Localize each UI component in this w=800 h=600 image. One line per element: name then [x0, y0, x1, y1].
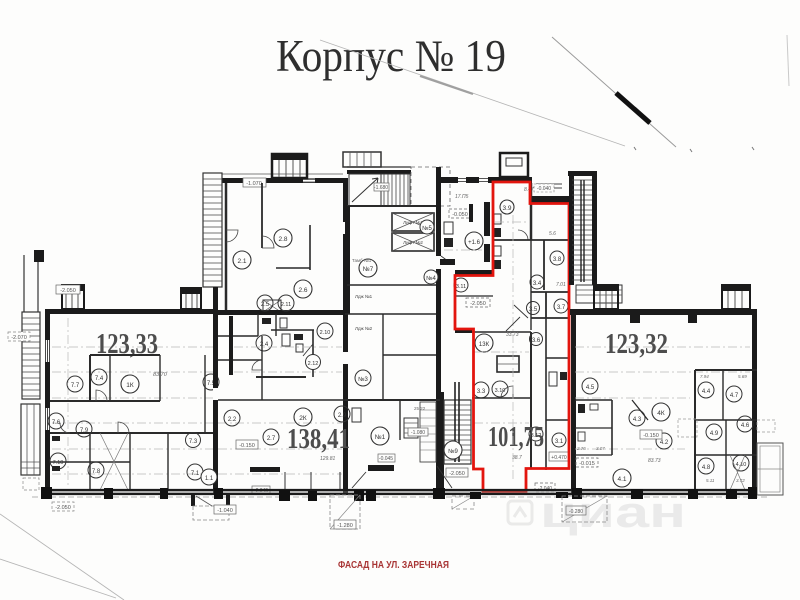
svg-text:3.3: 3.3 — [477, 389, 486, 395]
svg-text:4.9: 4.9 — [710, 431, 719, 437]
svg-text:4.5: 4.5 — [586, 385, 595, 391]
svg-text:101,75: 101,75 — [488, 422, 544, 453]
svg-text:2.9: 2.9 — [338, 413, 347, 419]
svg-text:-2.050: -2.050 — [470, 301, 486, 307]
svg-text:Лдж №2: Лдж №2 — [355, 326, 373, 331]
svg-text:13К: 13К — [479, 342, 490, 348]
svg-text:+1.6: +1.6 — [468, 240, 481, 246]
svg-text:4.3: 4.3 — [633, 417, 642, 423]
svg-text:33.73: 33.73 — [506, 332, 519, 338]
svg-text:7.6: 7.6 — [52, 420, 61, 426]
svg-text:7.94: 7.94 — [700, 374, 709, 379]
svg-text:-0.015: -0.015 — [579, 461, 595, 467]
svg-text:3.1: 3.1 — [555, 439, 564, 445]
svg-text:7.1: 7.1 — [191, 471, 200, 477]
svg-text:2.7: 2.7 — [267, 436, 276, 442]
svg-text:4К: 4К — [657, 410, 665, 417]
svg-text:Корпус № 19: Корпус № 19 — [276, 31, 506, 81]
svg-text:5.6: 5.6 — [549, 231, 556, 237]
svg-text:циан: циан — [540, 488, 686, 537]
svg-text:Тамб №1: Тамб №1 — [352, 258, 372, 263]
svg-text:2.10: 2.10 — [320, 330, 331, 336]
svg-text:3.5: 3.5 — [529, 307, 538, 313]
svg-text:+0.470: +0.470 — [551, 455, 567, 461]
svg-text:-2.050: -2.050 — [449, 471, 465, 477]
svg-text:1К: 1К — [126, 382, 134, 389]
svg-text:ФАСАД НА УЛ. ЗАРЕЧНАЯ: ФАСАД НА УЛ. ЗАРЕЧНАЯ — [338, 559, 449, 571]
svg-text:2.12: 2.12 — [308, 361, 319, 367]
svg-text:7.9: 7.9 — [80, 428, 89, 434]
svg-text:2.11: 2.11 — [281, 302, 291, 308]
svg-text:4.1: 4.1 — [617, 476, 626, 483]
svg-text:3.9: 3.9 — [502, 205, 511, 212]
svg-text:3.72: 3.72 — [736, 478, 745, 483]
svg-text:1.1: 1.1 — [205, 476, 214, 482]
svg-text:138,41: 138,41 — [287, 423, 350, 455]
svg-text:7.7: 7.7 — [71, 383, 80, 389]
svg-text:7.3: 7.3 — [189, 439, 198, 445]
svg-text:4.7: 4.7 — [730, 393, 739, 399]
svg-text:-2.050: -2.050 — [55, 505, 71, 511]
svg-text:83.73: 83.73 — [648, 458, 661, 464]
svg-text:2.8: 2.8 — [278, 236, 287, 243]
svg-text:7.01: 7.01 — [556, 282, 566, 288]
svg-text:3.6: 3.6 — [532, 338, 541, 344]
svg-text:-0.045: -0.045 — [379, 456, 393, 462]
svg-text:Лифт №2: Лифт №2 — [403, 240, 423, 245]
svg-text:25.22: 25.22 — [414, 406, 426, 411]
svg-text:-2.050: -2.050 — [60, 288, 76, 294]
svg-text:7.8: 7.8 — [92, 469, 101, 475]
svg-text:Лдж №1: Лдж №1 — [355, 294, 373, 299]
svg-text:№7: №7 — [363, 266, 374, 273]
svg-text:4.4: 4.4 — [702, 389, 711, 395]
svg-text:2К: 2К — [299, 415, 307, 422]
svg-text:2.5: 2.5 — [261, 302, 270, 308]
svg-text:7.4: 7.4 — [95, 376, 104, 382]
svg-text:№3: №3 — [358, 376, 368, 383]
svg-text:2.2: 2.2 — [228, 417, 237, 423]
svg-text:2.6: 2.6 — [298, 287, 307, 294]
svg-text:3.07: 3.07 — [596, 446, 605, 451]
svg-text:3.4: 3.4 — [533, 281, 542, 287]
svg-text:2.76: 2.76 — [576, 446, 586, 451]
svg-text:7.10: 7.10 — [53, 460, 64, 466]
svg-text:-1.070: -1.070 — [246, 181, 262, 187]
svg-text:№1: №1 — [375, 434, 386, 441]
svg-text:3.11: 3.11 — [456, 284, 466, 290]
svg-text:2.1: 2.1 — [237, 258, 246, 265]
svg-text:-1.280: -1.280 — [337, 523, 353, 529]
svg-text:-0.150: -0.150 — [643, 433, 659, 439]
svg-text:-1.040: -1.040 — [217, 508, 233, 514]
svg-text:38.7: 38.7 — [512, 455, 522, 461]
svg-text:3.7: 3.7 — [557, 305, 566, 311]
svg-text:3.8: 3.8 — [553, 257, 562, 263]
svg-text:-2.070: -2.070 — [11, 335, 27, 341]
svg-text:-1.680: -1.680 — [374, 185, 388, 191]
svg-text:123,32: 123,32 — [605, 328, 668, 360]
svg-text:129.81: 129.81 — [320, 456, 336, 462]
svg-text:4.6: 4.6 — [741, 423, 750, 429]
svg-text:-0.150: -0.150 — [239, 443, 255, 449]
svg-text:4.8: 4.8 — [702, 465, 711, 471]
svg-text:№4: №4 — [426, 275, 436, 282]
svg-text:-0.040: -0.040 — [537, 186, 551, 192]
svg-text:-1.080: -1.080 — [411, 430, 425, 436]
svg-text:5.11: 5.11 — [706, 478, 715, 483]
svg-text:3.10: 3.10 — [495, 388, 506, 394]
svg-text:5.69: 5.69 — [738, 374, 747, 379]
svg-text:17.П5: 17.П5 — [455, 194, 469, 200]
svg-text:№9: №9 — [448, 448, 458, 455]
svg-text:4.2: 4.2 — [660, 440, 669, 446]
svg-text:-0.050: -0.050 — [452, 212, 468, 218]
svg-text:№5: №5 — [422, 225, 432, 232]
